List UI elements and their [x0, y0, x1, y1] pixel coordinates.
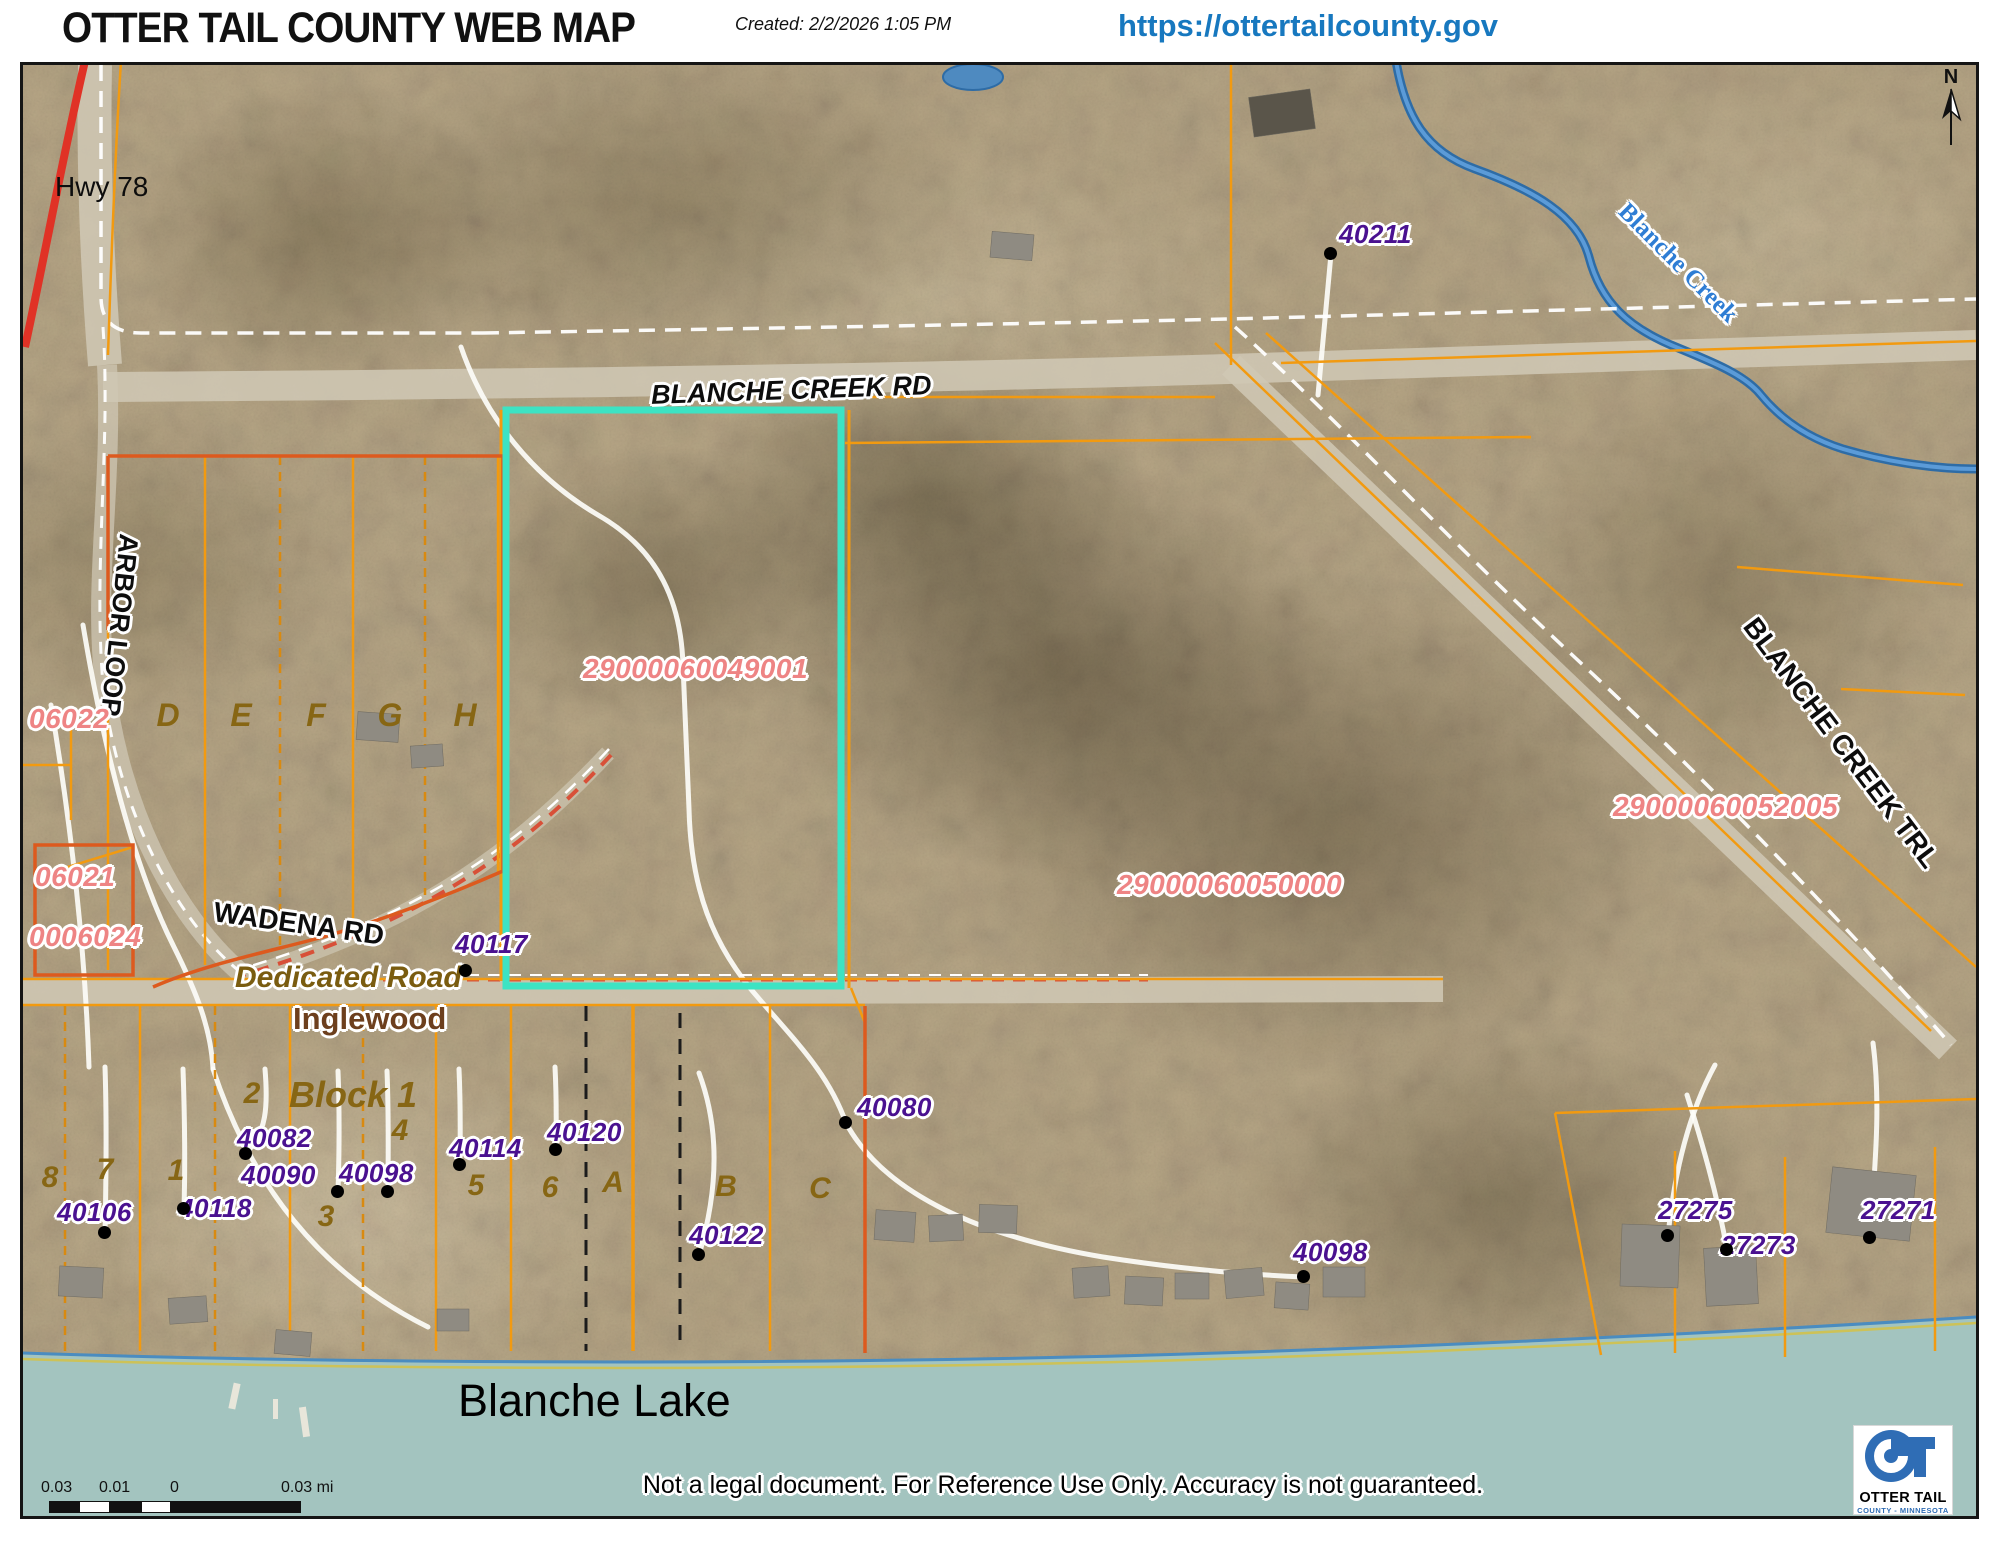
lot-letter: C — [809, 1174, 831, 1204]
road-label-dedicated-road: Dedicated Road — [235, 963, 462, 993]
parcel-id-label: 0006024 — [29, 923, 142, 951]
otter-tail-county-logo: OTTER TAIL COUNTY - MINNESOTA — [1853, 1425, 1953, 1515]
scale-bar-graphic — [49, 1501, 301, 1513]
address-point-label: 27271 — [1861, 1197, 1936, 1223]
scale-label: 0.01 — [99, 1479, 130, 1497]
place-label-inglewood: Inglewood — [293, 1003, 446, 1034]
county-logo-icon — [1861, 1428, 1945, 1484]
point-marker — [1720, 1243, 1733, 1256]
address-point-label: 40117 — [455, 931, 528, 957]
lot-letter: F — [306, 699, 326, 731]
lot-number: 6 — [542, 1173, 559, 1203]
address-point-label: 27275 — [1658, 1197, 1733, 1223]
point-marker — [331, 1185, 344, 1198]
scale-bar: 0.03 0.01 0 0.03 mi — [35, 1479, 345, 1519]
disclaimer-text: Not a legal document. For Reference Use … — [618, 1471, 1508, 1500]
point-marker — [239, 1147, 252, 1160]
county-logo-name: OTTER TAIL — [1853, 1490, 1953, 1506]
point-marker — [98, 1226, 111, 1239]
created-timestamp: Created: 2/2/2026 1:05 PM — [735, 14, 951, 35]
road-label-hwy78: Hwy 78 — [55, 173, 148, 201]
lot-letter: H — [453, 699, 476, 731]
address-point-label: 40080 — [857, 1094, 932, 1120]
north-arrow: N — [1931, 67, 1971, 154]
lot-number: 8 — [42, 1163, 59, 1193]
point-marker — [453, 1158, 466, 1171]
lot-number: 5 — [468, 1171, 485, 1201]
parcel-id-label: 29000060050000 — [1117, 871, 1342, 899]
address-point-label: 27273 — [1721, 1232, 1796, 1258]
lot-letter: B — [715, 1172, 737, 1202]
lot-number: 7 — [97, 1155, 114, 1185]
north-arrow-icon — [1938, 87, 1964, 149]
address-point-label: 40098 — [1293, 1239, 1368, 1265]
address-point-label: 40211 — [1339, 221, 1412, 247]
point-marker — [839, 1116, 852, 1129]
lot-number: 1 — [168, 1156, 185, 1186]
lot-letter: E — [230, 699, 251, 731]
lot-letter: A — [602, 1168, 624, 1198]
parcel-id-label: 29000060052005 — [1613, 793, 1838, 821]
lot-letter: G — [378, 699, 403, 731]
scale-label: 0 — [170, 1479, 179, 1497]
scale-label: 0.03 — [41, 1479, 72, 1497]
lot-number: 2 — [244, 1079, 261, 1109]
map-viewport[interactable]: Hwy 78 BLANCHE CREEK RD WADENA RD BLANCH… — [20, 62, 1979, 1519]
county-url-link[interactable]: https://ottertailcounty.gov — [1118, 8, 1498, 44]
pond — [943, 65, 1003, 90]
parcel-id-label: 06022 — [29, 705, 109, 733]
water-label-blanche-lake: Blanche Lake — [458, 1375, 731, 1427]
scale-label: 0.03 mi — [281, 1479, 333, 1497]
point-marker — [459, 964, 472, 977]
lot-letter: D — [156, 699, 179, 731]
place-label-block1: Block 1 — [289, 1077, 417, 1113]
point-marker — [692, 1248, 705, 1261]
page: OTTER TAIL COUNTY WEB MAP Created: 2/2/2… — [0, 0, 1999, 1545]
address-point-label: 40122 — [689, 1222, 764, 1248]
address-point-label: 40120 — [547, 1119, 622, 1145]
parcel-id-label: 06021 — [35, 863, 115, 891]
parcel-id-label-highlighted: 29000060049001 — [583, 655, 808, 683]
point-marker — [1297, 1270, 1310, 1283]
page-title: OTTER TAIL COUNTY WEB MAP — [62, 4, 635, 53]
point-marker — [381, 1185, 394, 1198]
address-point-label: 40090 — [241, 1162, 316, 1188]
lot-number: 3 — [318, 1202, 335, 1232]
point-marker — [1661, 1229, 1674, 1242]
lot-number: 4 — [392, 1116, 409, 1146]
point-marker — [1324, 247, 1337, 260]
north-arrow-label: N — [1931, 67, 1971, 87]
county-logo-subtitle: COUNTY - MINNESOTA — [1853, 1506, 1953, 1515]
address-point-label: 40106 — [57, 1199, 132, 1225]
point-marker — [1863, 1231, 1876, 1244]
point-marker — [177, 1202, 190, 1215]
point-marker — [549, 1143, 562, 1156]
address-point-label: 40098 — [339, 1160, 414, 1186]
